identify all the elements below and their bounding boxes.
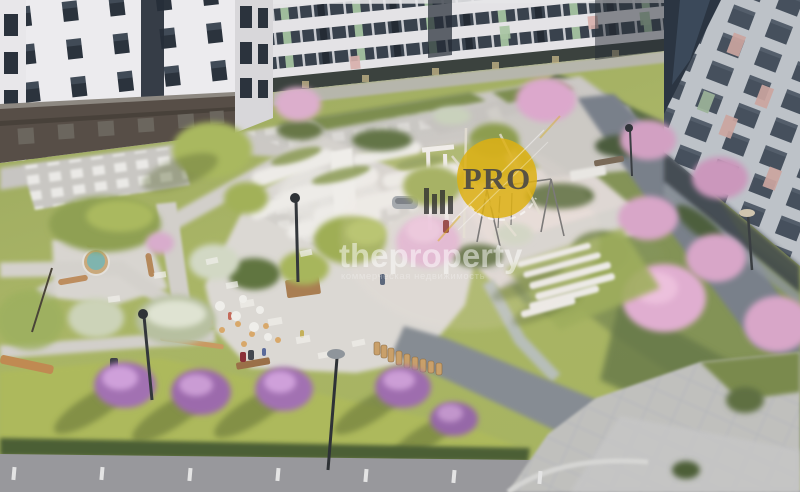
svg-text:theproperty: theproperty [339, 237, 523, 274]
svg-text:коммерческая недвижимость: коммерческая недвижимость [341, 271, 485, 282]
svg-text:PRO: PRO [463, 161, 531, 196]
